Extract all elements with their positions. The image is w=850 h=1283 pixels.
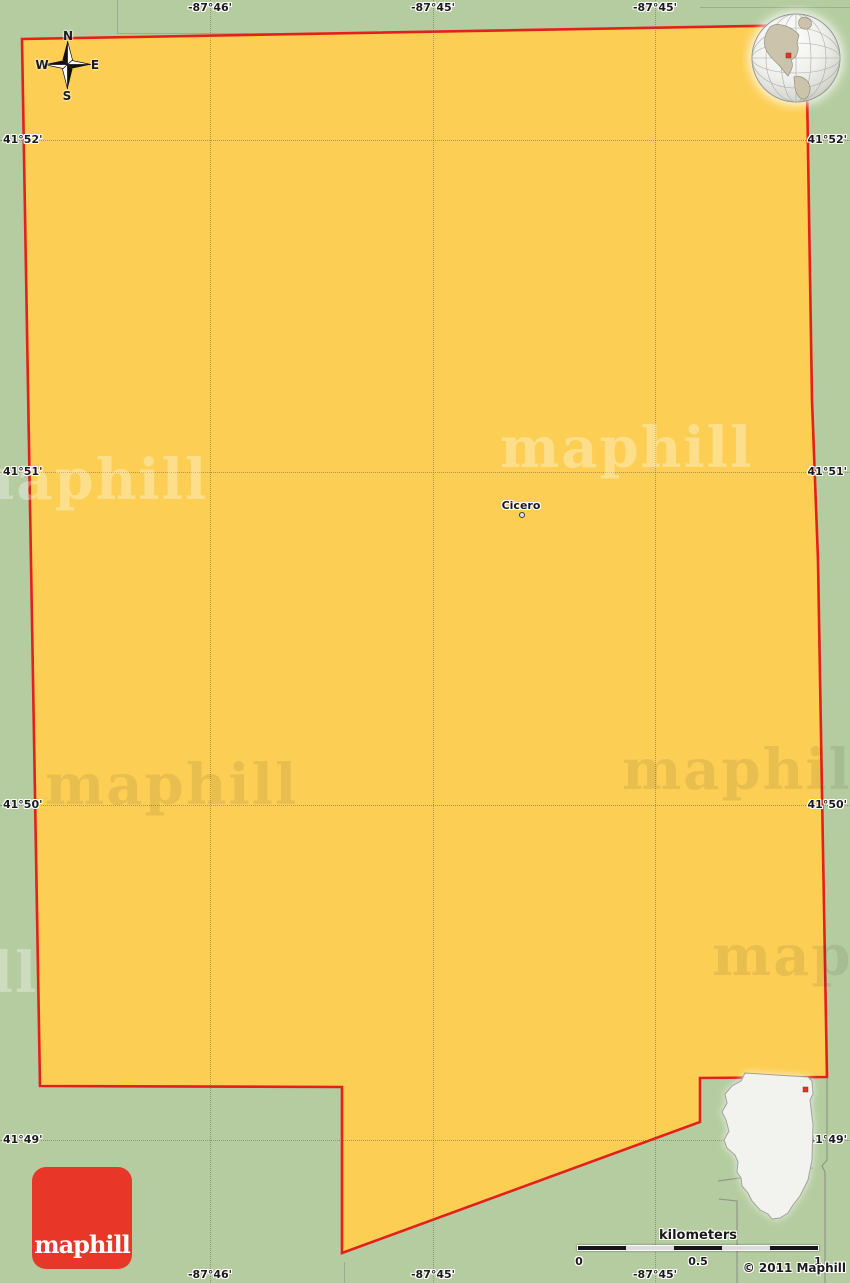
coord-label-left: 41°49' [3,1133,42,1147]
compass-rose: N W E S [0,0,120,120]
coord-label-bottom: -87°45' [411,1268,455,1282]
coord-label-left: 41°52' [3,133,42,147]
gridline-vertical [433,0,434,1283]
place-label-cicero: Cicero [502,499,541,512]
locator-globe-icon [742,5,850,113]
coord-label-top: -87°45' [633,1,677,15]
scalebar-segment [770,1246,818,1250]
coord-label-right: 41°52' [808,133,847,147]
copyright-text: © 2011 Maphill [743,1261,846,1275]
compass-s-label: S [63,89,72,103]
gridline-vertical [210,0,211,1283]
gridline-horizontal [0,140,850,141]
state-shape [722,1073,813,1219]
coord-label-left: 41°50' [3,798,42,812]
inset-location-marker [803,1087,808,1092]
maphill-logo: maphill [32,1167,132,1269]
maphill-logo-text: maphill [34,1230,130,1259]
compass-w-label: W [35,58,48,72]
gridline-vertical [655,0,656,1283]
coord-label-right: 41°50' [808,798,847,812]
coord-label-bottom: -87°45' [633,1268,677,1282]
globe-location-marker [786,53,791,58]
coord-label-top: -87°46' [188,1,232,15]
gridline-horizontal [0,805,850,806]
scalebar-segment [578,1246,626,1250]
scalebar-segment [626,1246,674,1250]
scalebar [577,1245,819,1251]
scalebar-tick: 0.5 [688,1255,708,1268]
compass-e-label: E [91,58,99,72]
scalebar-unit-label: kilometers [659,1228,737,1243]
place-marker-dot [519,512,525,518]
coord-label-left: 41°51' [3,465,42,479]
coord-label-bottom: -87°46' [188,1268,232,1282]
scalebar-segment [674,1246,722,1250]
compass-n-label: N [63,29,73,43]
gridline-horizontal [0,472,850,473]
coord-label-top: -87°45' [411,1,455,15]
coord-label-right: 41°51' [808,465,847,479]
map-canvas: maphill maphill maphill maphill maphill … [0,0,850,1283]
scalebar-segment [722,1246,770,1250]
scalebar-tick: 0 [575,1255,583,1268]
